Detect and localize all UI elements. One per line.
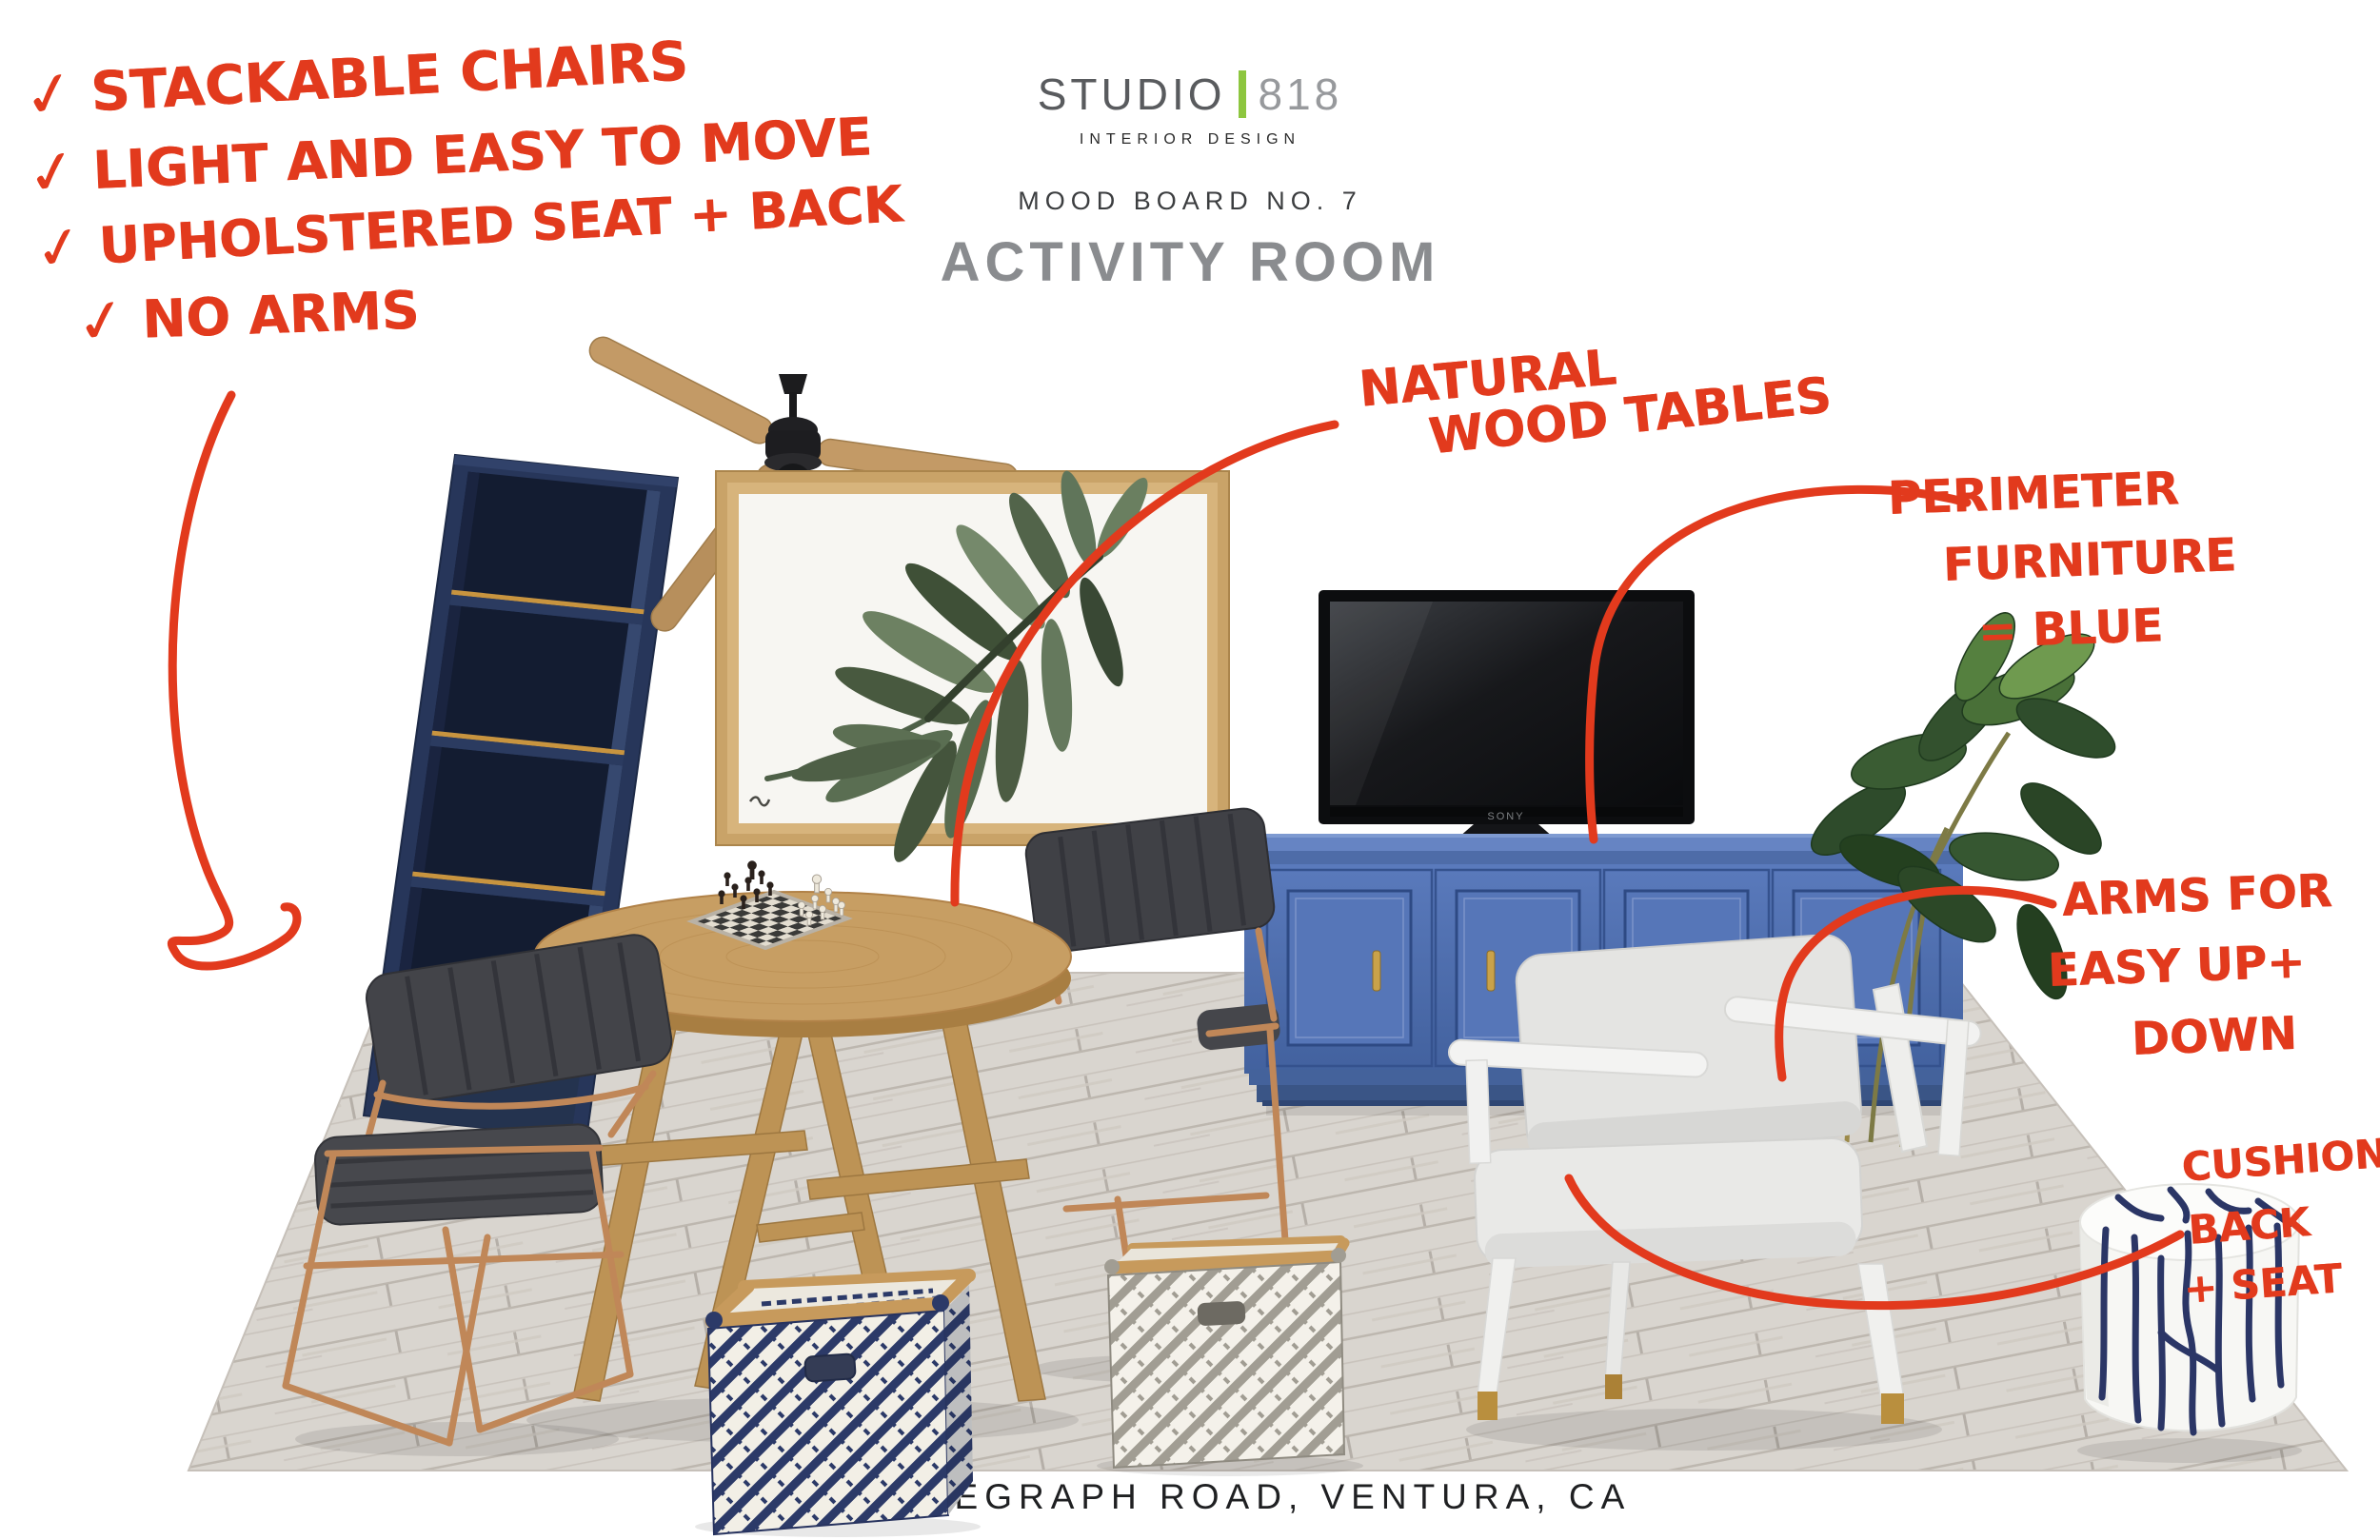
note-line: PERIMETER [1887,462,2180,525]
note-line: BACK [2187,1198,2311,1254]
checkmark-icon: ✓ [30,212,89,286]
note-line: ARMS FOR [2061,864,2333,927]
note-line: EASY UP+ [2047,936,2306,997]
checklist-text: NO ARMS [141,280,420,350]
checklist-item: ✓ NO ARMS [78,280,420,352]
note-line: DOWN [2131,1007,2298,1066]
checkmark-icon: ✓ [22,134,83,210]
basket-gray [1104,1241,1346,1468]
note-line: = BLUE [1977,599,2164,659]
tv: SONY [1319,590,1695,838]
brand-divider-bar [1239,70,1246,118]
note-line: FURNITURE [1942,528,2237,592]
brand-name: STUDIO [1038,69,1226,120]
mood-board: 5430 TELEGRAPH ROAD, VENTURA, CA [0,0,2380,1540]
checkmark-icon: ✓ [17,55,81,134]
basket-blue [705,1275,973,1534]
arrow-checklist-to-chair [171,395,297,966]
checkmark-icon: ✓ [71,283,131,359]
brand-number: 818 [1259,69,1343,120]
tv-brand-label: SONY [1487,811,1524,822]
framed-leaf-art [716,467,1229,868]
